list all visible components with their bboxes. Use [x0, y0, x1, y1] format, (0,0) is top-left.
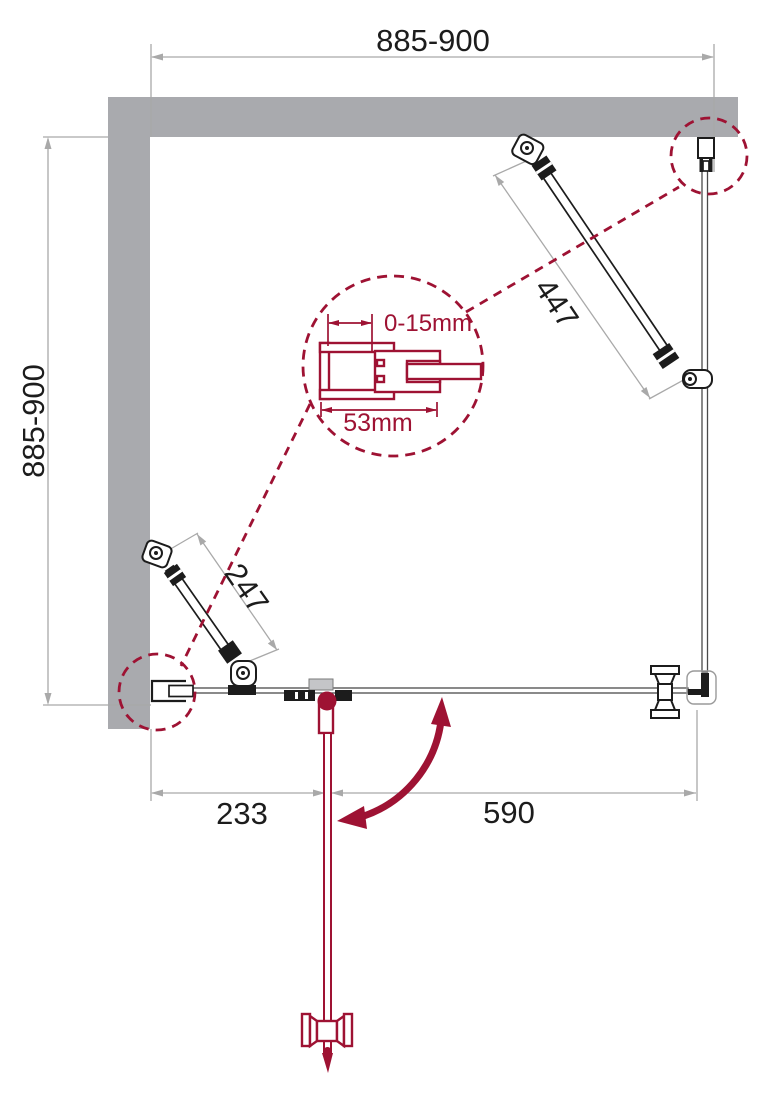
clamp-foot [228, 685, 256, 695]
detail-width-dimension: 53mm [321, 402, 437, 437]
corner-bracket-horizontal [688, 689, 709, 695]
dim-arrow [495, 175, 504, 186]
dimension-left-height-label: 885-900 [16, 364, 51, 478]
dim-arrow [268, 640, 277, 651]
brace-long-label: 447 [528, 272, 586, 334]
dim-arrow [321, 407, 332, 413]
dimension-top-width-label: 885-900 [376, 23, 490, 58]
door-panel-group [302, 692, 451, 1074]
walls [108, 97, 738, 729]
brace-short-label: 247 [218, 557, 276, 619]
dimension-fixed-panel-label: 233 [216, 796, 268, 831]
detail-width-label: 53mm [343, 409, 412, 437]
clip-detail [377, 376, 384, 382]
hinge-slit [295, 692, 298, 699]
mount-screw-dot [154, 551, 158, 555]
glass-panel-right [702, 170, 708, 672]
dim-arrow [151, 54, 163, 61]
knob-waist [658, 684, 672, 700]
installation-diagram: 885-900 885-900 233 590 [0, 0, 764, 1100]
dim-arrow [684, 790, 696, 797]
corner-connector [687, 671, 716, 704]
profile-insert [169, 686, 193, 697]
door-tip-point [322, 1053, 333, 1073]
side-glass-panel [698, 138, 714, 672]
swing-arrow-up [431, 697, 451, 727]
dim-arrow [328, 320, 339, 326]
dim-arrow [361, 320, 372, 326]
dim-arrow [426, 407, 437, 413]
bracket-body [698, 138, 714, 158]
dim-arrow [45, 693, 52, 705]
dimension-door-label: 590 [483, 795, 535, 830]
dim-arrow [45, 137, 52, 149]
hinge-clamp-plate [309, 679, 333, 690]
knob-cap [651, 666, 679, 674]
hinge-block [335, 690, 352, 701]
door-glass-edge [324, 733, 331, 1055]
support-brace-long: 447 [493, 133, 712, 399]
wall-profile-left [152, 681, 193, 701]
door-swing-arc [364, 721, 441, 816]
clamp-screw-dot [688, 377, 692, 381]
hinge-slit [305, 692, 308, 699]
dim-arrow [702, 54, 714, 61]
support-brace-short: 247 [141, 533, 279, 695]
diagram-canvas: 885-900 885-900 233 590 [0, 0, 764, 1100]
leader-line [181, 404, 310, 666]
door-pivot [318, 692, 337, 711]
clamp-screw-dot [241, 671, 245, 675]
bracket-slot [703, 161, 709, 171]
wall-top [108, 97, 738, 137]
knob-neck [655, 700, 675, 710]
glass-panel-bottom [193, 688, 688, 693]
wall-profile-detail [320, 343, 481, 399]
glass-edge [407, 364, 481, 379]
dim-arrow [331, 790, 343, 797]
door-hinge-hardware [284, 679, 352, 701]
wall-left [108, 97, 150, 729]
dim-arrow [197, 534, 206, 546]
dim-arrow [151, 790, 163, 797]
knob-cap [651, 710, 679, 718]
knob-waist [317, 1021, 337, 1041]
hinge-block [284, 690, 315, 701]
mount-screw-dot [525, 146, 529, 150]
detail-adjustment-label: 0-15mm [384, 310, 472, 337]
swing-arrow-left [337, 806, 367, 829]
wall-bracket-top [698, 138, 714, 172]
knob-cap [344, 1014, 352, 1046]
clip-detail [377, 360, 384, 366]
knob-neck [655, 674, 675, 684]
dim-arrow [641, 387, 650, 398]
